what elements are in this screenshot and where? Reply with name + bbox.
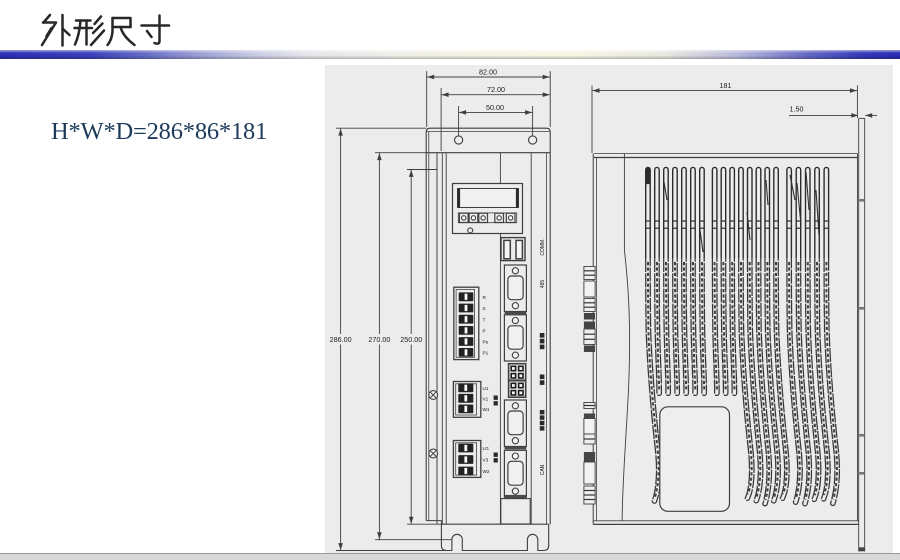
svg-text:U1: U1 <box>483 386 489 391</box>
svg-text:181: 181 <box>720 81 732 90</box>
svg-text:W1: W1 <box>483 407 490 412</box>
svg-text:82.00: 82.00 <box>479 68 497 77</box>
svg-text:CAN: CAN <box>540 464 546 475</box>
svg-text:T: T <box>483 317 486 322</box>
svg-text:Pe: Pe <box>483 340 489 345</box>
svg-text:72.00: 72.00 <box>487 85 505 94</box>
svg-text:250.00: 250.00 <box>400 335 422 344</box>
svg-text:485: 485 <box>540 280 546 289</box>
svg-text:COMM.: COMM. <box>540 238 546 255</box>
svg-text:P1: P1 <box>483 351 489 356</box>
svg-text:W2: W2 <box>483 469 490 474</box>
svg-text:V3: V3 <box>483 458 489 463</box>
svg-text:50.00: 50.00 <box>486 103 504 112</box>
svg-text:286.00: 286.00 <box>330 335 352 344</box>
svg-text:S: S <box>483 306 486 311</box>
svg-text:P: P <box>483 329 486 334</box>
svg-text:V1: V1 <box>483 397 489 402</box>
svg-text:270.00: 270.00 <box>368 335 390 344</box>
svg-text:LG: LG <box>483 446 490 451</box>
svg-text:1.50: 1.50 <box>790 105 804 114</box>
